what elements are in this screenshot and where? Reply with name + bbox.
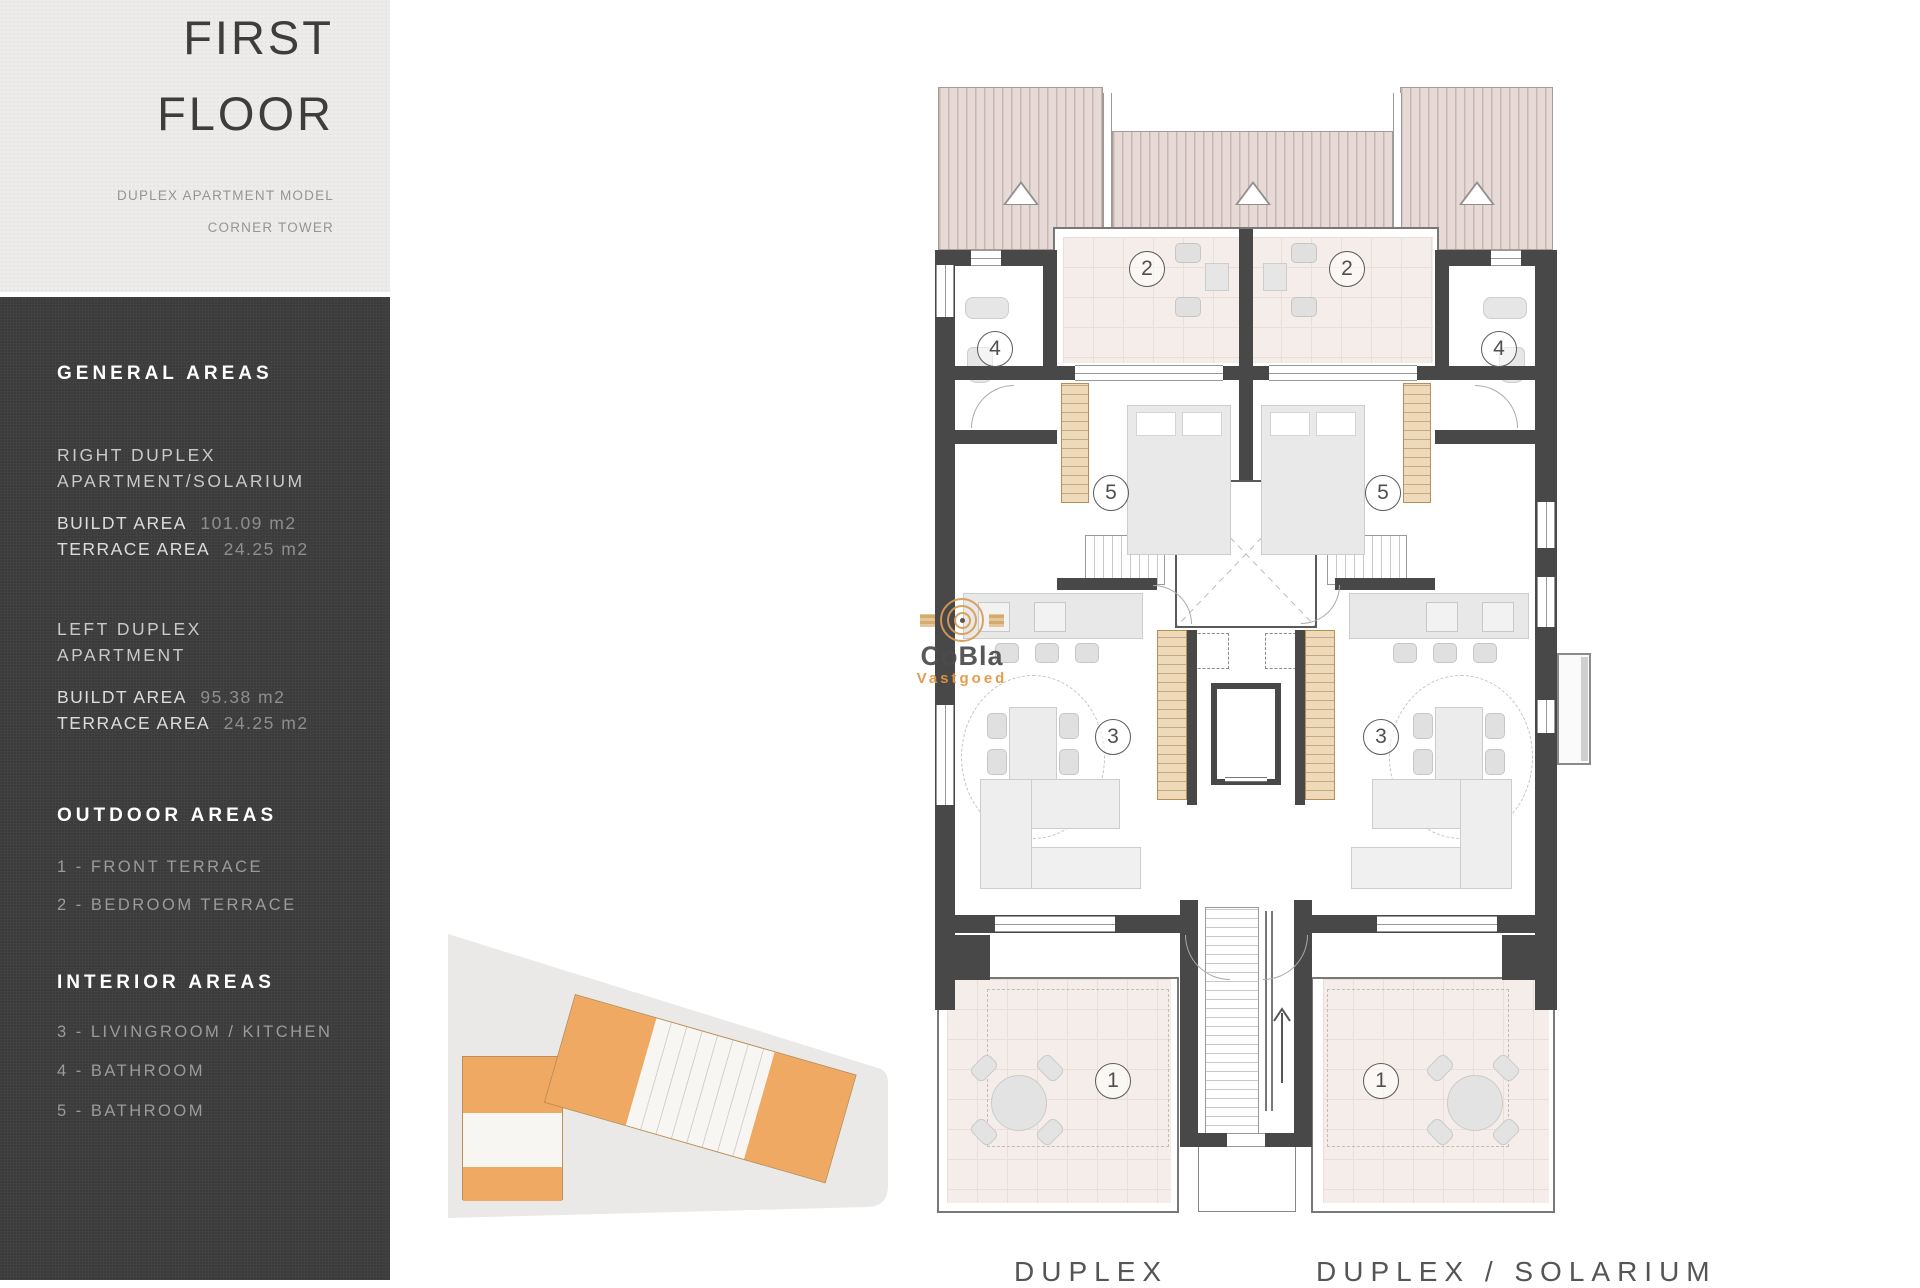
sliding-window xyxy=(1269,365,1417,381)
page: { "title": { "line1": "FIRST", "line2": … xyxy=(0,0,1920,1280)
room-number-front-terrace: 1 xyxy=(1363,1063,1399,1099)
sofa-chaise xyxy=(980,779,1032,889)
right-duplex-name-line2: APARTMENT/SOLARIUM xyxy=(57,471,305,492)
left-duplex-name-line1: LEFT DUPLEX xyxy=(57,619,202,640)
kitchen-counter xyxy=(1349,593,1529,639)
pillow xyxy=(1182,412,1222,436)
bedroom-wall xyxy=(1335,578,1435,590)
watermark: CoBla Vastgoed xyxy=(903,598,1021,687)
page-title-line2: FLOOR xyxy=(157,86,334,141)
dining-chair xyxy=(1059,713,1079,739)
bathroom-sink xyxy=(1483,297,1527,319)
stool xyxy=(1433,643,1457,663)
stool xyxy=(1393,643,1417,663)
watermark-brand: CoBla xyxy=(903,642,1021,670)
right-duplex-terrace-row: TERRACE AREA 24.25 m2 xyxy=(57,539,309,560)
cooktop xyxy=(1034,602,1066,632)
right-duplex-built-row: BUILDT AREA 101.09 m2 xyxy=(57,513,297,534)
heading-general-areas: GENERAL AREAS xyxy=(57,363,273,385)
room-number-bedroom: 5 xyxy=(1093,475,1129,511)
terrace-area-value: 24.25 m2 xyxy=(224,713,309,733)
room-number-bathroom: 4 xyxy=(977,331,1013,367)
room-number-bedroom-terrace: 2 xyxy=(1329,251,1365,287)
built-area-label: BUILDT AREA xyxy=(57,687,186,707)
legend-item-front-terrace: 1 - FRONT TERRACE xyxy=(57,858,263,877)
terrace-area-label: TERRACE AREA xyxy=(57,713,209,733)
watermark-bar-icon xyxy=(989,614,1004,627)
door-swing xyxy=(1475,385,1518,428)
door-swing xyxy=(971,385,1014,428)
stool xyxy=(1473,643,1497,663)
party-wall xyxy=(1239,229,1253,367)
wall-stub-right xyxy=(1435,264,1449,380)
kitchen-sink xyxy=(1482,602,1514,632)
legend-item-bathroom-4: 4 - BATHROOM xyxy=(57,1062,205,1081)
front-terrace-left-outline xyxy=(937,977,1179,1213)
cooktop xyxy=(1426,602,1458,632)
sliding-window xyxy=(1075,365,1223,381)
terrace-table xyxy=(1263,263,1287,291)
dining-chair xyxy=(1413,749,1433,775)
pillow xyxy=(1136,412,1176,436)
legend-item-bedroom-terrace: 2 - BEDROOM TERRACE xyxy=(57,896,297,915)
bed xyxy=(1261,405,1365,555)
core-wardrobe xyxy=(1157,630,1187,800)
room-number-living: 3 xyxy=(1095,719,1131,755)
window xyxy=(971,250,1001,266)
core-wardrobe xyxy=(1305,630,1335,800)
terrace-sliding-door xyxy=(1377,916,1497,932)
corner-pier xyxy=(1502,935,1557,980)
dining-chair xyxy=(1059,749,1079,775)
inset-left-building-white-mid xyxy=(463,1113,562,1167)
room-number-front-terrace: 1 xyxy=(1095,1063,1131,1099)
bathroom-wall xyxy=(955,430,1057,444)
core-wall xyxy=(1295,630,1305,805)
built-area-label: BUILDT AREA xyxy=(57,513,186,533)
dining-chair xyxy=(1485,749,1505,775)
legend-item-bathroom-5: 5 - BATHROOM xyxy=(57,1102,205,1121)
site-location-inset xyxy=(440,928,900,1228)
terrace-chair xyxy=(1291,243,1317,263)
window xyxy=(936,265,954,317)
page-title-line1: FIRST xyxy=(183,10,334,65)
heading-interior-areas: INTERIOR AREAS xyxy=(57,972,275,994)
terrace-round-table xyxy=(991,1075,1047,1131)
wall-stub-left xyxy=(1043,264,1057,380)
balcony-door xyxy=(1537,700,1555,733)
watermark-logo xyxy=(903,598,1021,642)
stool xyxy=(1075,643,1099,663)
left-duplex-built-row: BUILDT AREA 95.38 m2 xyxy=(57,687,285,708)
pillow xyxy=(1316,412,1356,436)
core-wall xyxy=(1187,630,1197,805)
dining-chair xyxy=(1413,713,1433,739)
wardrobe xyxy=(1403,383,1431,503)
heading-outdoor-areas: OUTDOOR AREAS xyxy=(57,805,277,827)
terrace-chair xyxy=(1291,297,1317,317)
dining-chair xyxy=(1485,713,1505,739)
tv-bench xyxy=(1031,847,1141,889)
shaft-walkway xyxy=(1198,1147,1296,1212)
bed xyxy=(1127,405,1231,555)
left-duplex-name-line2: APARTMENT xyxy=(57,645,186,666)
window xyxy=(1537,577,1555,627)
room-number-bathroom: 4 xyxy=(1481,331,1517,367)
room-number-bedroom: 5 xyxy=(1365,475,1401,511)
door-swing xyxy=(1301,585,1340,624)
tv-bench xyxy=(1351,847,1461,889)
terrace-chair xyxy=(1175,243,1201,263)
room-number-living: 3 xyxy=(1363,719,1399,755)
bathroom-sink xyxy=(965,297,1009,319)
wardrobe xyxy=(1061,383,1089,503)
caption-duplex: DUPLEX xyxy=(1014,1256,1168,1288)
terrace-chair xyxy=(1175,297,1201,317)
room-number-bedroom-terrace: 2 xyxy=(1129,251,1165,287)
stair-up-arrow-icon xyxy=(1271,1005,1293,1085)
watermark-bar-icon xyxy=(920,614,935,627)
bathroom-wall xyxy=(1435,430,1537,444)
caption-duplex-solarium: DUPLEX / SOLARIUM xyxy=(1316,1256,1717,1288)
legend-sidebar: GENERAL AREAS RIGHT DUPLEX APARTMENT/SOL… xyxy=(0,297,390,1280)
title-card: FIRST FLOOR DUPLEX APARTMENT MODEL CORNE… xyxy=(0,0,390,292)
dashed-shaft-box xyxy=(1193,633,1229,669)
pillow xyxy=(1270,412,1310,436)
sofa-chaise xyxy=(1460,779,1512,889)
bedroom-wall xyxy=(1057,578,1157,590)
dining-chair xyxy=(987,713,1007,739)
legend-item-livingroom-kitchen: 3 - LIVINGROOM / KITCHEN xyxy=(57,1023,332,1042)
elevator xyxy=(1211,683,1281,785)
right-duplex-name-line1: RIGHT DUPLEX xyxy=(57,445,216,466)
center-wall xyxy=(1239,366,1253,480)
rings-logo-icon xyxy=(940,598,984,642)
built-area-value: 95.38 m2 xyxy=(200,687,285,707)
window xyxy=(936,705,954,805)
terrace-table xyxy=(1205,263,1229,291)
terrace-round-table xyxy=(1447,1075,1503,1131)
side-balcony xyxy=(1557,653,1591,765)
page-subtitle-2: CORNER TOWER xyxy=(208,220,334,235)
terrace-roof-left xyxy=(938,87,1103,250)
inset-left-building-orange-bottom xyxy=(463,1167,562,1201)
outer-wall-right xyxy=(1535,250,1557,1010)
corner-pier xyxy=(935,935,990,980)
terrace-area-label: TERRACE AREA xyxy=(57,539,209,559)
window xyxy=(1537,502,1555,548)
front-terrace-right-outline xyxy=(1311,977,1555,1213)
terrace-sliding-door xyxy=(995,916,1115,932)
shaft-door xyxy=(1227,1133,1265,1147)
inset-left-building-orange-top xyxy=(463,1057,562,1113)
left-duplex-terrace-row: TERRACE AREA 24.25 m2 xyxy=(57,713,309,734)
inset-building-left xyxy=(462,1056,563,1200)
window xyxy=(1491,250,1521,266)
watermark-subbrand: Vastgoed xyxy=(903,670,1021,687)
floor-plan: 2 2 4 4 5 5 xyxy=(935,85,1605,1220)
stool xyxy=(1035,643,1059,663)
terrace-area-value: 24.25 m2 xyxy=(224,539,309,559)
dining-chair xyxy=(987,749,1007,775)
terrace-roof-right xyxy=(1400,87,1553,250)
page-subtitle-1: DUPLEX APARTMENT MODEL xyxy=(117,188,334,203)
built-area-value: 101.09 m2 xyxy=(200,513,296,533)
bedroom-terraces-block xyxy=(1053,227,1439,369)
